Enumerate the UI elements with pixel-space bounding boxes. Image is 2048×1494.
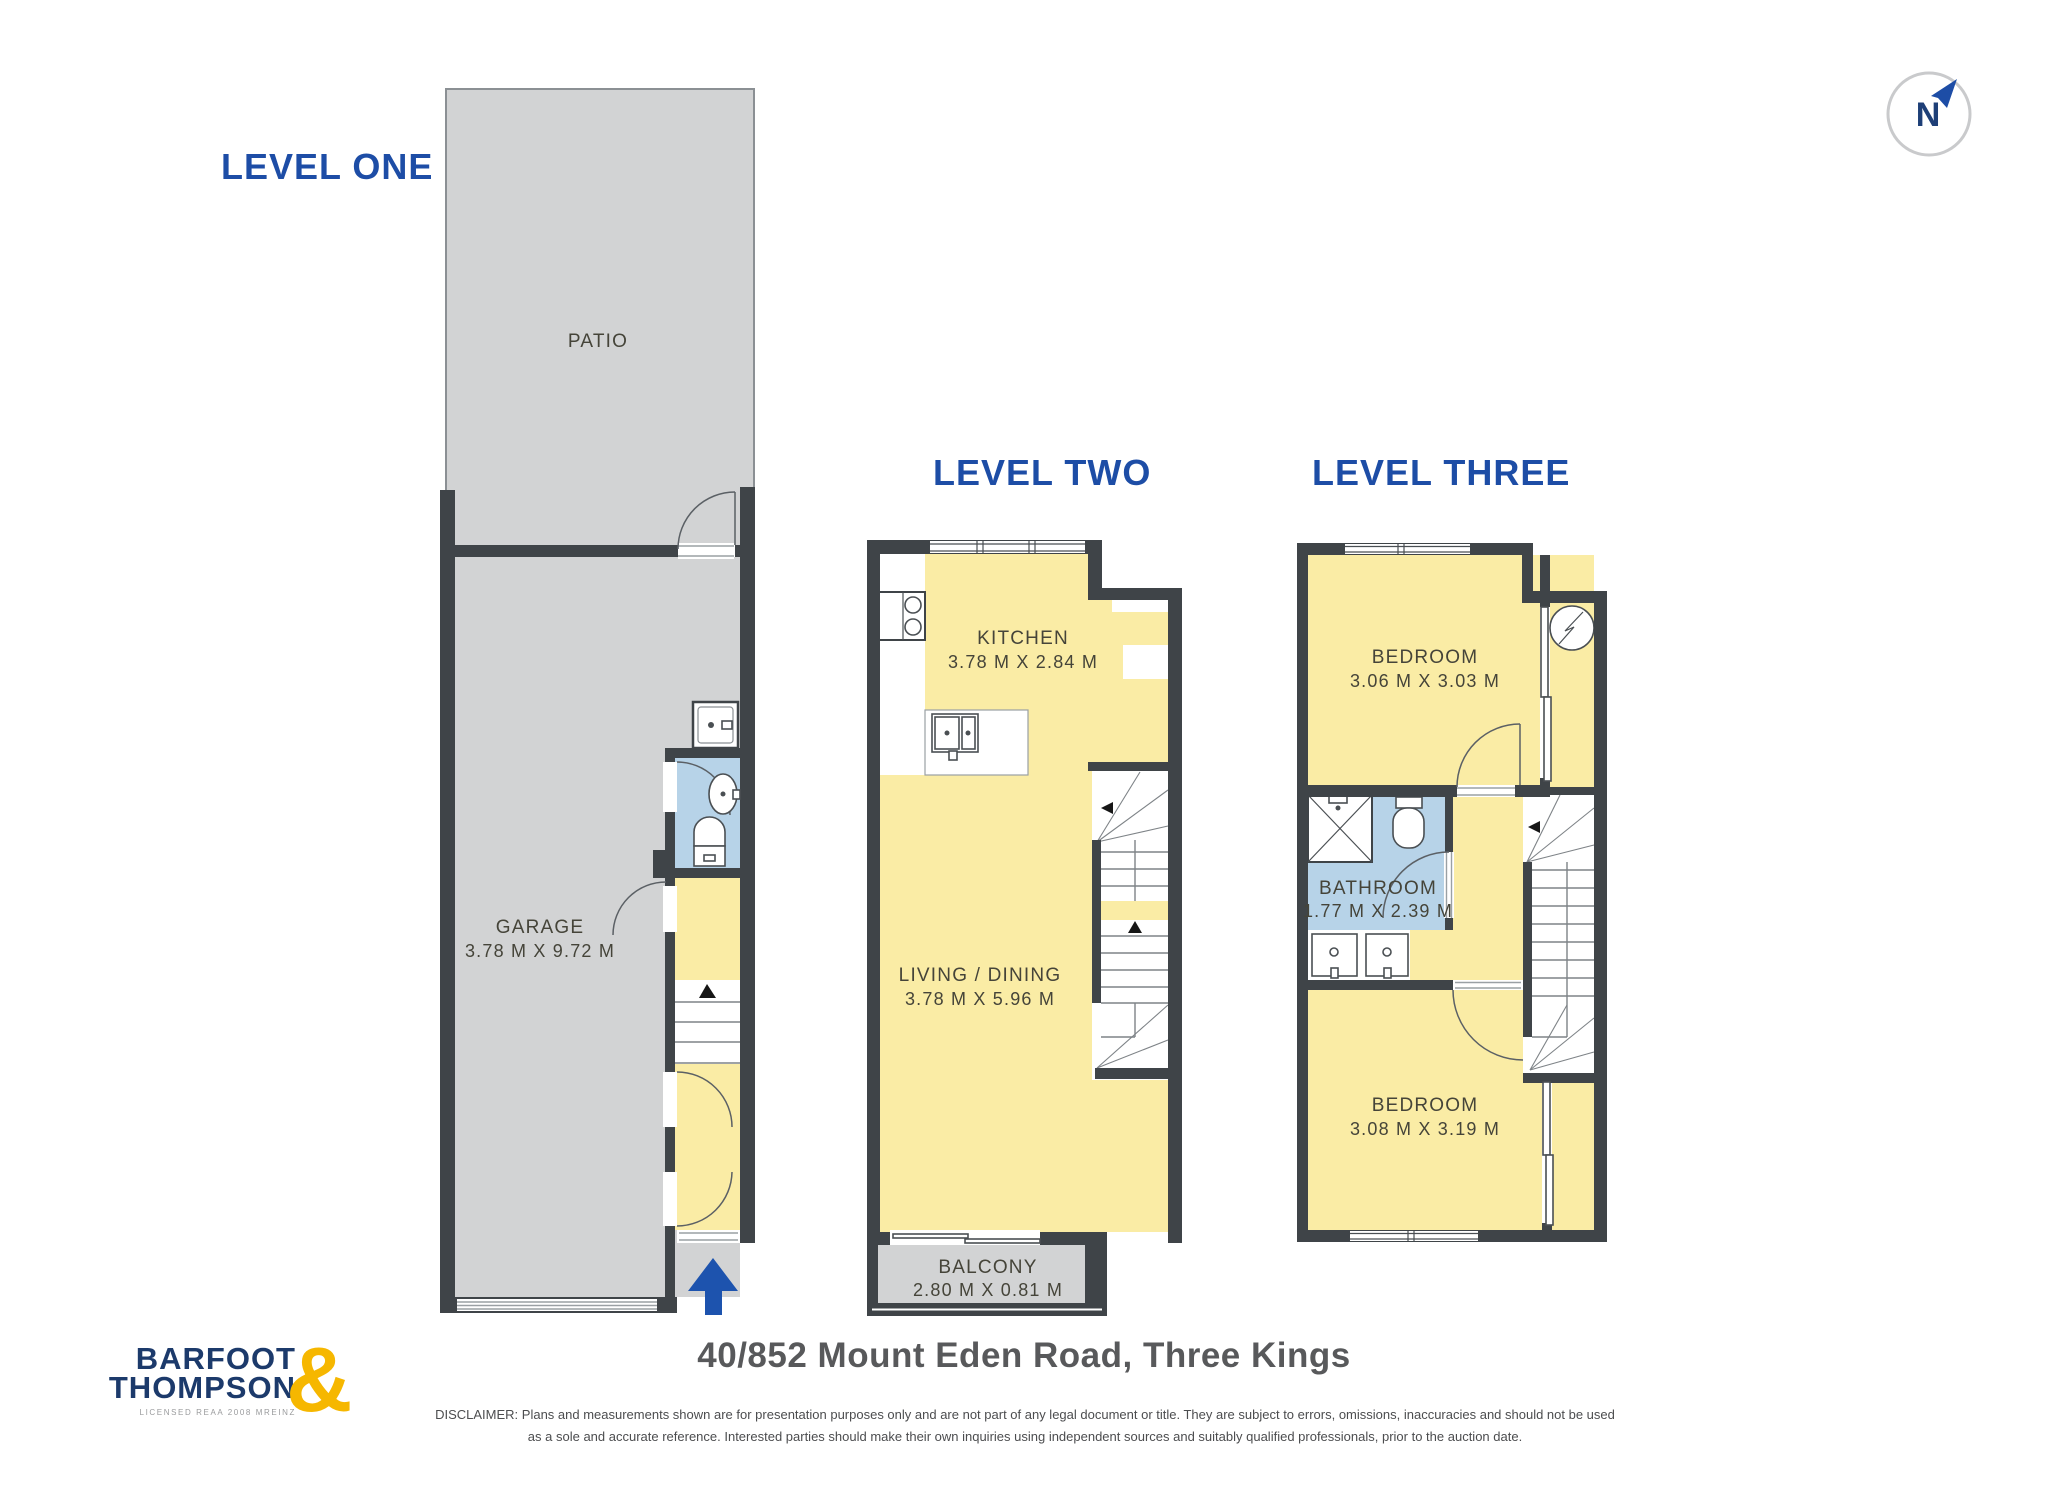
room-dims-living: 3.78 M X 5.96 M bbox=[905, 989, 1055, 1009]
shower-icon bbox=[1308, 795, 1372, 862]
patio-area bbox=[445, 88, 755, 545]
room-dims-kitchen: 3.78 M X 2.84 M bbox=[948, 652, 1098, 672]
room-label-bedroom-bottom: BEDROOM bbox=[1372, 1095, 1479, 1116]
closet-area bbox=[1410, 930, 1453, 980]
room-label-bathroom: BATHROOM bbox=[1319, 878, 1437, 899]
room-dims-bedroom-bottom: 3.08 M X 3.19 M bbox=[1350, 1119, 1500, 1139]
balcony-slider-door bbox=[890, 1230, 1040, 1245]
laundry-tub-icon bbox=[693, 702, 738, 748]
pantry-alcove bbox=[1123, 645, 1168, 679]
north-compass: N bbox=[1885, 70, 1977, 162]
floorplan-page: LEVEL ONE LEVEL TWO LEVEL THREE bbox=[0, 0, 2048, 1494]
level-two-plan: KITCHEN 3.78 M X 2.84 M LIVING / DINING … bbox=[860, 535, 1195, 1320]
bedroom-top-window bbox=[1345, 544, 1470, 554]
landing-area bbox=[1453, 795, 1523, 980]
level-three-plan: BEDROOM 3.06 M X 3.03 M BATHROOM 1.77 M … bbox=[1290, 535, 1615, 1250]
stairwell-area bbox=[1092, 770, 1168, 1080]
disclaimer: DISCLAIMER: Plans and measurements shown… bbox=[400, 1404, 1650, 1448]
toilet-icon bbox=[1393, 797, 1424, 848]
room-label-garage: GARAGE bbox=[496, 917, 585, 938]
entry-threshold bbox=[677, 1230, 740, 1243]
property-address: 40/852 Mount Eden Road, Three Kings bbox=[0, 1336, 2048, 1376]
bedroom-bottom-window bbox=[1350, 1231, 1478, 1241]
garage-door bbox=[457, 1299, 657, 1311]
kitchen-counter-left bbox=[880, 554, 925, 775]
level-three-title: LEVEL THREE bbox=[1312, 452, 1570, 494]
room-label-bedroom-top: BEDROOM bbox=[1372, 647, 1479, 668]
door-gap bbox=[663, 886, 677, 932]
corridor-bottom-area bbox=[1552, 1083, 1594, 1230]
compass-label: N bbox=[1916, 96, 1941, 134]
disclaimer-line-1: DISCLAIMER: Plans and measurements shown… bbox=[400, 1404, 1650, 1426]
level-one-plan: PATIO GARAGE 3.78 M X 9.72 M bbox=[430, 80, 775, 1325]
room-dims-balcony: 2.80 M X 0.81 M bbox=[913, 1280, 1063, 1300]
hot-water-cylinder-icon bbox=[1550, 606, 1594, 650]
kitchen-window bbox=[930, 541, 1085, 553]
bedroom-top-slider-door bbox=[1541, 607, 1551, 781]
room-label-kitchen: KITCHEN bbox=[977, 628, 1069, 649]
logo-word-2: THOMPSON bbox=[62, 1373, 296, 1402]
disclaimer-line-2: as a sole and accurate reference. Intere… bbox=[400, 1426, 1650, 1448]
toilet-icon bbox=[694, 817, 725, 866]
bedroom-bottom-slider-door bbox=[1543, 1082, 1553, 1225]
level-two-title: LEVEL TWO bbox=[933, 452, 1151, 494]
room-dims-bedroom-top: 3.06 M X 3.03 M bbox=[1350, 671, 1500, 691]
room-dims-garage: 3.78 M X 9.72 M bbox=[465, 941, 615, 961]
stove-icon bbox=[878, 592, 925, 640]
door-gap bbox=[663, 762, 677, 812]
door-gap bbox=[663, 1172, 677, 1226]
wardrobe-corridor-area bbox=[1550, 555, 1594, 787]
room-label-living: LIVING / DINING bbox=[899, 965, 1062, 986]
room-label-balcony: BALCONY bbox=[938, 1257, 1037, 1278]
level-one-title: LEVEL ONE bbox=[221, 146, 433, 188]
logo-tagline: LICENSED REAA 2008 MREINZ bbox=[62, 1408, 296, 1417]
room-label-patio: PATIO bbox=[568, 331, 628, 352]
room-dims-bathroom: 1.77 M X 2.39 M bbox=[1303, 901, 1453, 921]
door-gap bbox=[663, 1072, 677, 1127]
